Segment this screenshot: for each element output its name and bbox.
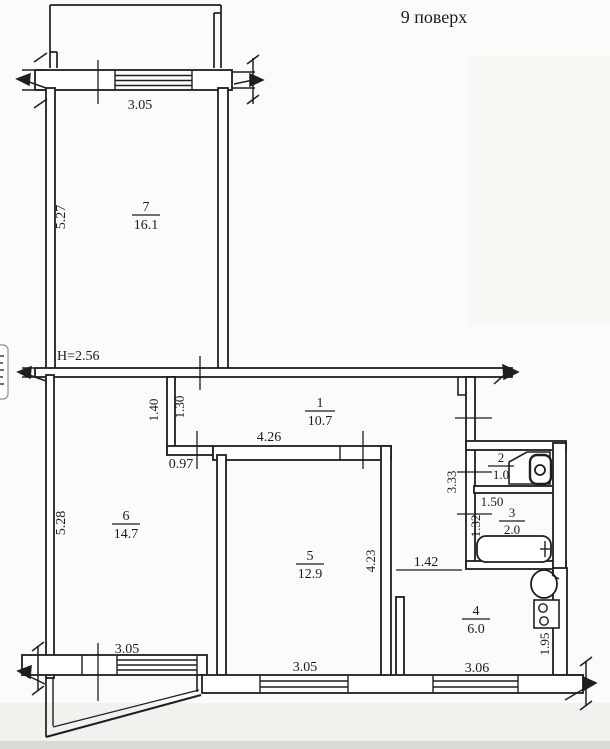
room4-number: 4 — [473, 604, 480, 619]
floor-plan-canvas: 9 поверх 7 16.1 1 10.7 6 14.7 5 12.9 2 1… — [0, 0, 610, 749]
room7-area: 16.1 — [134, 218, 159, 233]
room7-number: 7 — [143, 200, 150, 215]
dim-room5-window: 3.05 — [293, 660, 318, 675]
dim-hall-130: 1.30 — [172, 396, 187, 419]
room1-number: 1 — [317, 396, 324, 411]
dim-hall-140: 1.40 — [146, 399, 161, 422]
room2-area: 1.0 — [493, 467, 509, 482]
dim-ceiling-height: H=2.56 — [57, 349, 100, 364]
dim-kitchen-pass: 1.42 — [414, 555, 439, 570]
dim-kitchen-window: 3.06 — [465, 661, 490, 676]
room4-area: 6.0 — [467, 622, 485, 637]
bathtub — [477, 536, 551, 562]
kitchen-stove — [534, 600, 559, 628]
dim-bath-150: 1.50 — [481, 494, 504, 509]
dim-room7-side: 5.27 — [54, 205, 69, 230]
room1-area: 10.7 — [308, 414, 333, 429]
dim-san-333: 3.33 — [444, 471, 459, 494]
room6-number: 6 — [123, 509, 130, 524]
dim-room6-side: 5.28 — [54, 511, 69, 536]
edge-artifact-button[interactable] — [0, 345, 8, 399]
dim-hall-426: 4.26 — [257, 430, 282, 445]
dim-kitchen-195: 1.95 — [537, 633, 552, 656]
dim-room5-side: 4.23 — [363, 550, 378, 573]
room6-area: 14.7 — [114, 527, 139, 542]
floor-plan-page: 9 поверх 7 16.1 1 10.7 6 14.7 5 12.9 2 1… — [0, 0, 610, 749]
room5-number: 5 — [307, 549, 314, 564]
room3-area: 2.0 — [504, 522, 520, 537]
dim-room6-window: 3.05 — [115, 642, 140, 657]
dim-hall-097: 0.97 — [169, 457, 194, 472]
room2-number: 2 — [498, 450, 505, 465]
page-title: 9 поверх — [401, 7, 468, 27]
dim-bath-132: 1.32 — [468, 515, 483, 538]
room5-area: 12.9 — [298, 567, 323, 582]
dim-top-window: 3.05 — [128, 98, 153, 113]
room3-number: 3 — [509, 505, 516, 520]
